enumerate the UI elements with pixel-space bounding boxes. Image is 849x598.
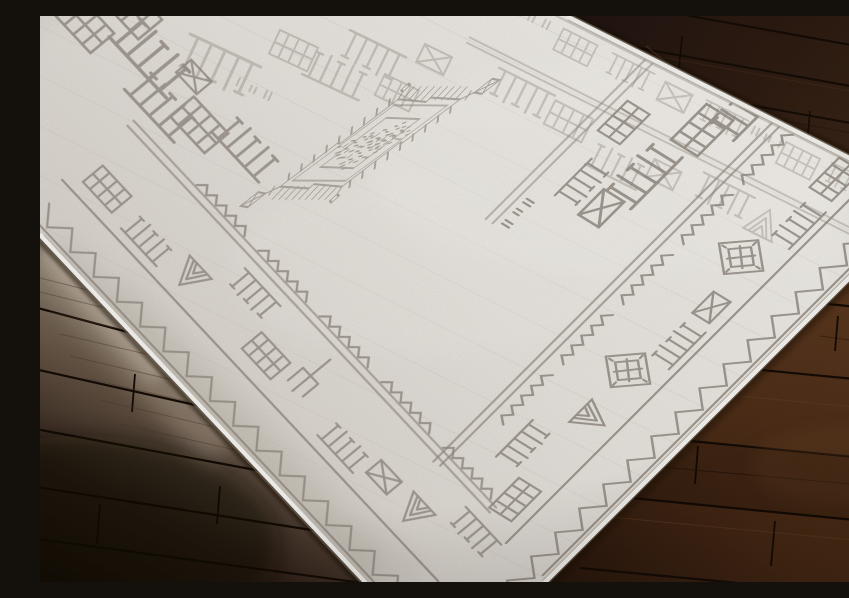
photo-canvas — [40, 16, 849, 582]
film-grain-overlay — [40, 16, 849, 582]
rug-product-photo: Ivory area rug with distressed gray trib… — [40, 16, 849, 582]
